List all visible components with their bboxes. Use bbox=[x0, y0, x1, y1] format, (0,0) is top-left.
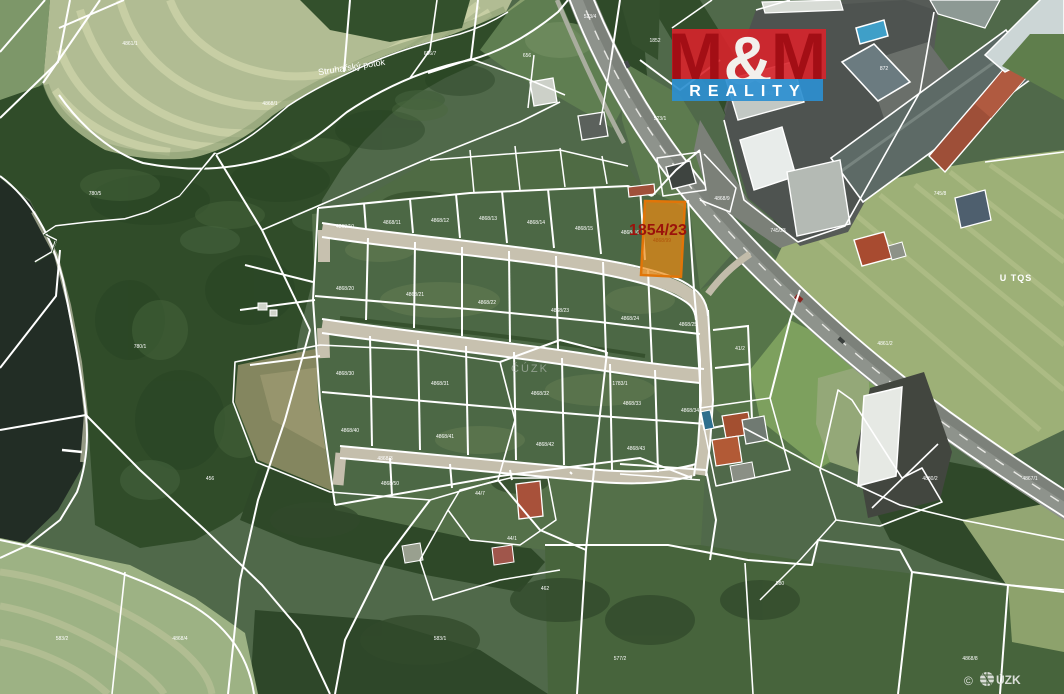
svg-text:656: 656 bbox=[523, 53, 532, 59]
svg-text:4868/30: 4868/30 bbox=[336, 371, 354, 377]
svg-text:U TQS: U TQS bbox=[1000, 273, 1033, 283]
svg-text:4868/3: 4868/3 bbox=[377, 456, 393, 462]
svg-text:872: 872 bbox=[880, 66, 889, 72]
svg-text:4868/32: 4868/32 bbox=[531, 391, 549, 397]
svg-text:4861/1: 4861/1 bbox=[122, 41, 138, 47]
svg-text:4868/42: 4868/42 bbox=[536, 442, 554, 448]
svg-text:4880/2: 4880/2 bbox=[922, 476, 938, 482]
svg-text:4868/15: 4868/15 bbox=[575, 226, 593, 232]
svg-text:456: 456 bbox=[206, 476, 215, 482]
svg-text:4868/31: 4868/31 bbox=[431, 381, 449, 387]
svg-text:4868/1: 4868/1 bbox=[262, 101, 278, 107]
svg-text:745/8: 745/8 bbox=[934, 191, 947, 197]
svg-text:REALITY: REALITY bbox=[689, 83, 806, 100]
svg-text:4868/25: 4868/25 bbox=[679, 322, 697, 328]
svg-text:©: © bbox=[964, 674, 973, 688]
svg-text:4868/33: 4868/33 bbox=[623, 401, 641, 407]
svg-text:4868/50: 4868/50 bbox=[381, 481, 399, 487]
svg-text:577/2: 577/2 bbox=[614, 656, 627, 662]
svg-text:583/1: 583/1 bbox=[434, 636, 447, 642]
svg-text:44/7: 44/7 bbox=[475, 491, 485, 497]
svg-text:4868/4: 4868/4 bbox=[172, 636, 188, 642]
svg-text:41/2: 41/2 bbox=[735, 346, 745, 352]
svg-text:1852: 1852 bbox=[649, 38, 660, 44]
svg-text:4868/10: 4868/10 bbox=[336, 224, 354, 230]
svg-text:4868/8: 4868/8 bbox=[962, 656, 978, 662]
svg-text:4861/2: 4861/2 bbox=[877, 341, 893, 347]
svg-text:583/2: 583/2 bbox=[56, 636, 69, 642]
svg-text:4868/11: 4868/11 bbox=[383, 220, 401, 226]
svg-text:462: 462 bbox=[541, 586, 550, 592]
svg-text:1783/1: 1783/1 bbox=[612, 381, 628, 387]
svg-text:780/1: 780/1 bbox=[134, 344, 147, 350]
svg-text:ÚZK: ÚZK bbox=[996, 672, 1021, 687]
svg-text:ČÚZK: ČÚZK bbox=[511, 362, 549, 375]
svg-text:4868/13: 4868/13 bbox=[479, 216, 497, 222]
svg-text:4868/9: 4868/9 bbox=[714, 196, 730, 202]
svg-text:745/23: 745/23 bbox=[770, 228, 786, 234]
svg-text:580: 580 bbox=[776, 581, 785, 587]
svg-text:4868/22: 4868/22 bbox=[478, 300, 496, 306]
svg-text:4868/21: 4868/21 bbox=[406, 292, 424, 298]
svg-text:4868/40: 4868/40 bbox=[341, 428, 359, 434]
svg-text:4868/41: 4868/41 bbox=[436, 434, 454, 440]
svg-text:4868/23: 4868/23 bbox=[551, 308, 569, 314]
svg-text:4868/24: 4868/24 bbox=[621, 316, 639, 322]
svg-text:4868/14: 4868/14 bbox=[527, 220, 545, 226]
svg-text:4868/34: 4868/34 bbox=[681, 408, 699, 414]
svg-text:4867/1: 4867/1 bbox=[1022, 476, 1038, 482]
svg-text:4868/20: 4868/20 bbox=[336, 286, 354, 292]
svg-text:523/4: 523/4 bbox=[584, 14, 597, 20]
svg-text:523/1: 523/1 bbox=[654, 116, 667, 122]
svg-text:780/5: 780/5 bbox=[89, 191, 102, 197]
svg-text:4868/43: 4868/43 bbox=[627, 446, 645, 452]
svg-text:1854/23: 1854/23 bbox=[629, 222, 687, 239]
svg-text:44/1: 44/1 bbox=[507, 536, 517, 542]
svg-text:656/7: 656/7 bbox=[424, 51, 437, 57]
svg-text:4868/12: 4868/12 bbox=[431, 218, 449, 224]
